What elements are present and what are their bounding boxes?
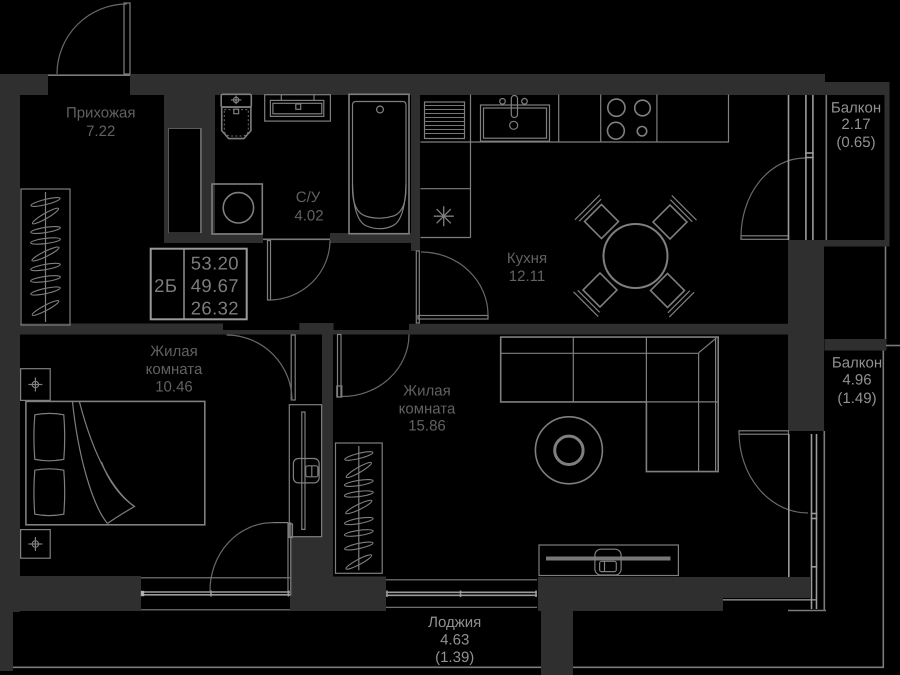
svg-text:4.96: 4.96 (842, 372, 871, 389)
svg-text:Лоджия: Лоджия (428, 614, 481, 631)
svg-text:комната: комната (399, 400, 456, 417)
svg-text:2.17: 2.17 (841, 116, 870, 133)
svg-text:Прихожая: Прихожая (66, 105, 136, 122)
svg-text:2Б: 2Б (154, 275, 177, 296)
svg-text:(0.65): (0.65) (836, 134, 875, 151)
svg-text:53.20: 53.20 (191, 253, 239, 274)
svg-text:(1.49): (1.49) (837, 390, 876, 407)
svg-text:4.63: 4.63 (440, 632, 469, 649)
svg-text:комната: комната (146, 361, 203, 378)
svg-text:49.67: 49.67 (191, 275, 239, 296)
svg-text:Жилая: Жилая (150, 343, 197, 360)
svg-text:12.11: 12.11 (509, 268, 545, 285)
svg-text:7.22: 7.22 (86, 123, 115, 140)
svg-text:С/У: С/У (296, 189, 321, 206)
svg-text:15.86: 15.86 (408, 417, 446, 434)
svg-text:Балкон: Балкон (832, 355, 882, 372)
svg-text:26.32: 26.32 (191, 298, 239, 319)
svg-text:4.02: 4.02 (294, 207, 323, 224)
svg-text:10.46: 10.46 (155, 379, 193, 396)
svg-text:Кухня: Кухня (507, 250, 547, 267)
svg-text:(1.39): (1.39) (435, 649, 474, 666)
svg-text:Балкон: Балкон (831, 100, 881, 117)
svg-text:Жилая: Жилая (403, 383, 450, 400)
